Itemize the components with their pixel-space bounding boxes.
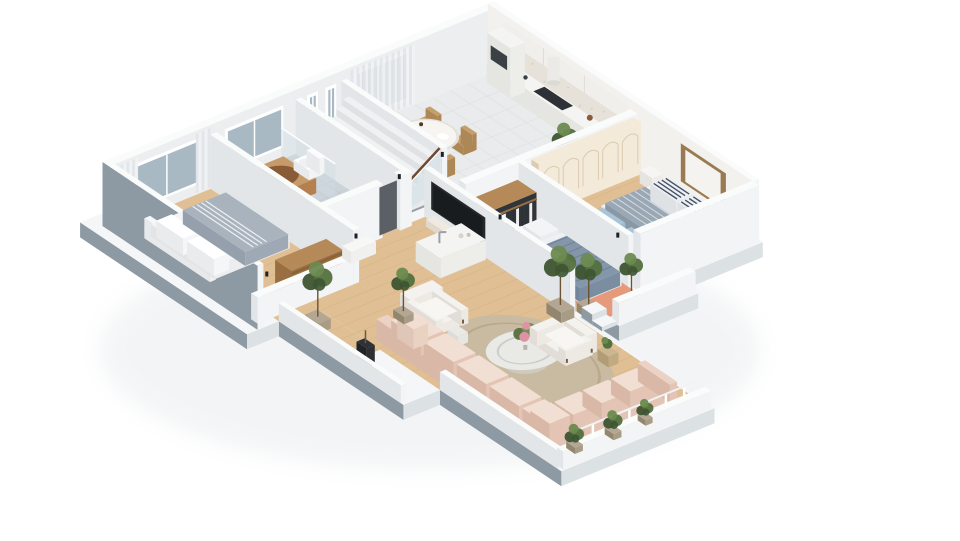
floor-plan-stage xyxy=(0,0,960,541)
floor-plan-render xyxy=(0,0,960,541)
